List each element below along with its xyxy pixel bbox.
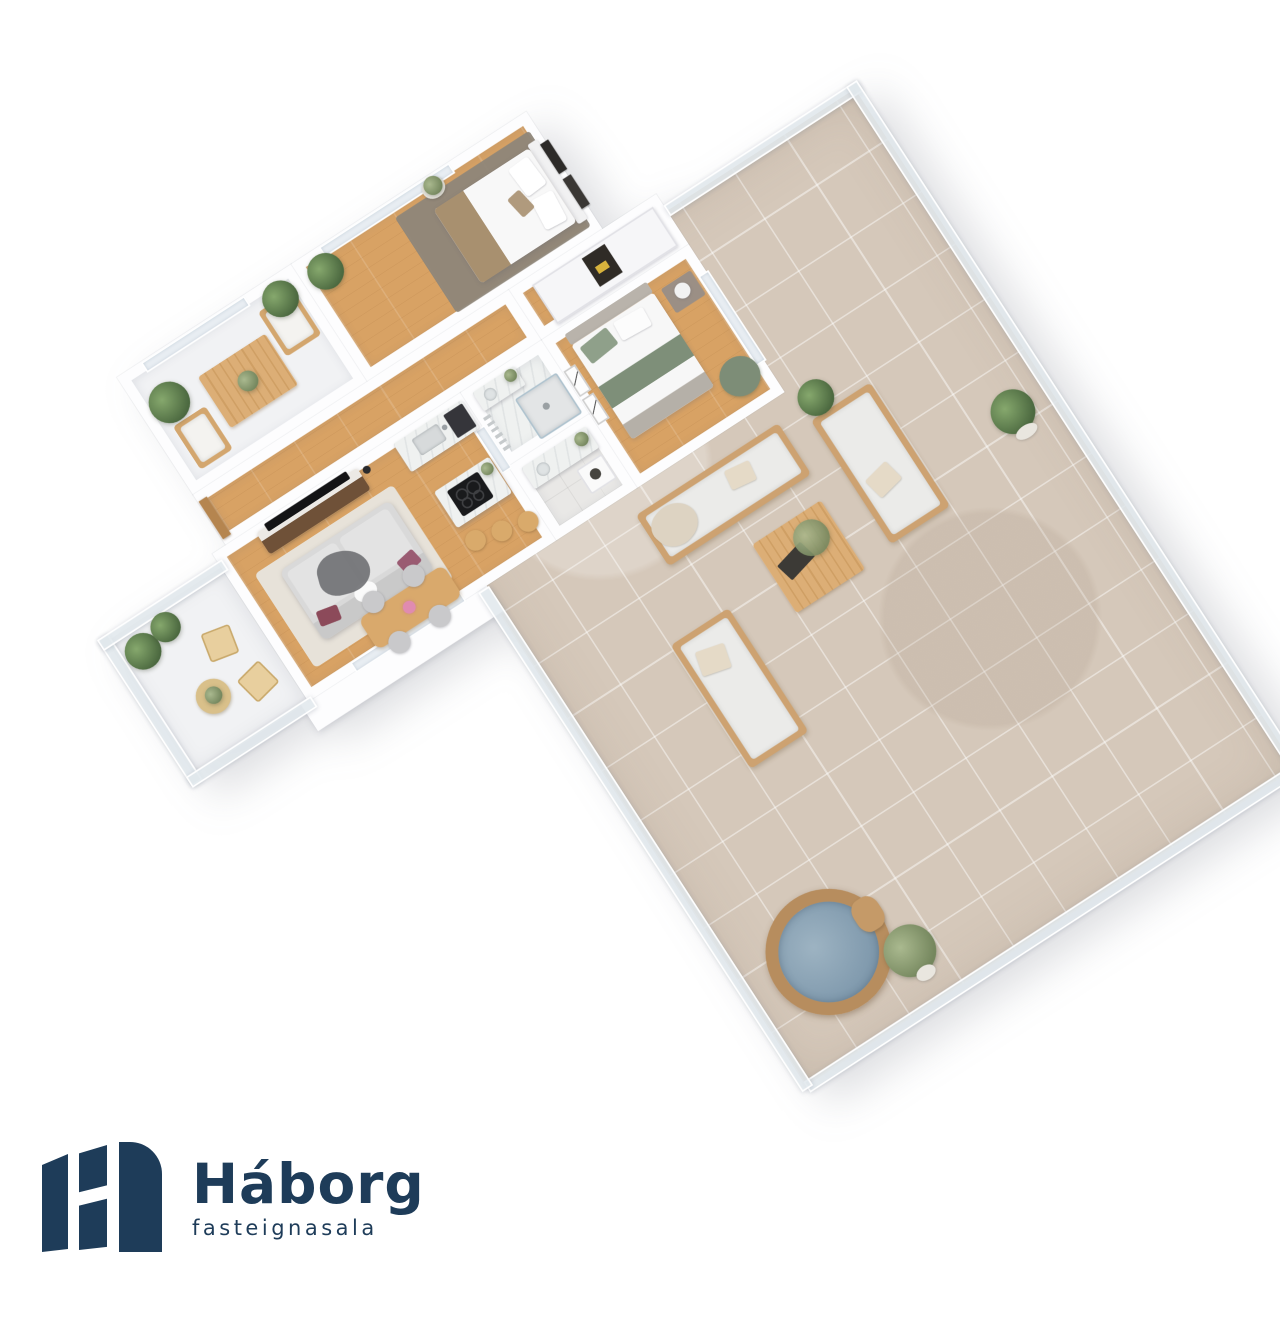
brand-text-block: Háborg fasteignasala	[192, 1156, 425, 1241]
brand-name: Háborg	[192, 1156, 425, 1214]
logo-bar-right	[119, 1142, 162, 1252]
floorplan-render	[0, 0, 1280, 1280]
logo-bar-left	[42, 1152, 68, 1252]
brand-tagline: fasteignasala	[192, 1216, 425, 1240]
haborg-logo-icon	[42, 1142, 162, 1254]
apartment-3d-plan	[0, 0, 1280, 1332]
washer-door	[588, 466, 603, 481]
brand-logo: Háborg fasteignasala	[42, 1142, 425, 1254]
